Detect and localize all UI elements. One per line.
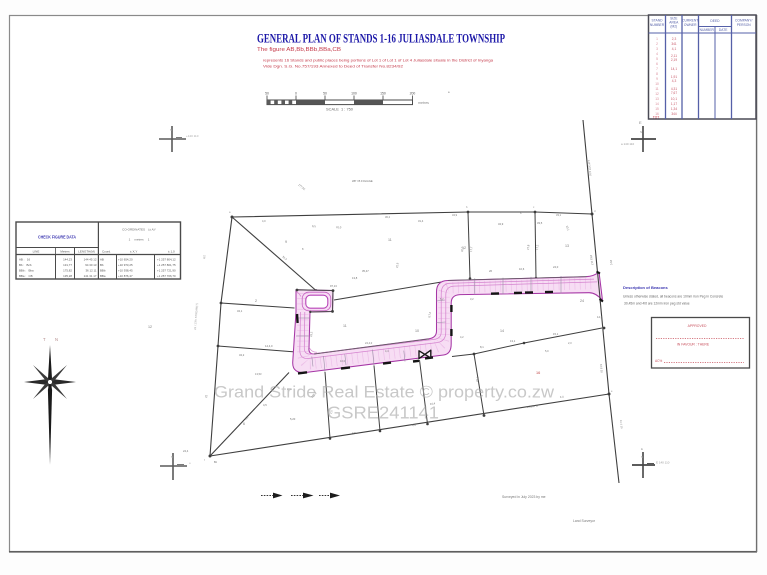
svg-text:LINE: LINE bbox=[33, 250, 40, 254]
svg-text:1: 1 bbox=[656, 37, 658, 41]
svg-text:10,6: 10,6 bbox=[519, 267, 525, 271]
svg-text:Grand Stride Real Estate © pro: Grand Stride Real Estate © property.co.z… bbox=[214, 384, 554, 402]
svg-text:4,1: 4,1 bbox=[672, 47, 677, 51]
svg-text:24,4,0: 24,4,0 bbox=[365, 341, 373, 345]
svg-text:2,3: 2,3 bbox=[568, 341, 572, 345]
svg-text:AB : 16: AB : 16 bbox=[19, 258, 30, 262]
svg-text:8: 8 bbox=[656, 72, 658, 76]
svg-text:represents 16 Stands and publi: represents 16 Stands and public places b… bbox=[263, 58, 494, 63]
svg-text:22,5: 22,5 bbox=[395, 262, 399, 268]
svg-text:WP / B FOLIAGE: WP / B FOLIAGE bbox=[352, 179, 373, 183]
svg-text:0: 0 bbox=[295, 92, 297, 96]
svg-text:144,23: 144,23 bbox=[63, 258, 72, 262]
svg-text:Metres: Metres bbox=[60, 250, 70, 254]
svg-text:27,8: 27,8 bbox=[526, 244, 530, 250]
svg-text:100: 100 bbox=[351, 92, 357, 96]
svg-text:7: 7 bbox=[656, 67, 658, 71]
svg-text:T: T bbox=[43, 337, 46, 342]
svg-text:APPROVED: APPROVED bbox=[688, 324, 707, 328]
svg-text:31,4: 31,4 bbox=[418, 219, 424, 223]
svg-text:N: N bbox=[171, 455, 173, 459]
svg-text:14,5: 14,5 bbox=[597, 315, 603, 319]
svg-text:34,9: 34,9 bbox=[452, 213, 458, 217]
svg-text:CHECK FIGURE DATA: CHECK FIGURE DATA bbox=[38, 235, 76, 240]
svg-text:9: 9 bbox=[285, 240, 287, 244]
svg-text:+10 973,25: +10 973,25 bbox=[118, 263, 133, 267]
svg-text:34,9: 34,9 bbox=[498, 222, 504, 226]
svg-text:NUMBER: NUMBER bbox=[700, 28, 715, 32]
svg-text:94 30 13: 94 30 13 bbox=[85, 263, 97, 267]
svg-text:30,45m and 40t are 12mm iron p: 30,45m and 40t are 12mm iron peg std val… bbox=[624, 302, 690, 306]
svg-text:10,0: 10,0 bbox=[340, 359, 346, 363]
svg-text:IN FAVOUR : THERE: IN FAVOUR : THERE bbox=[677, 343, 710, 347]
svg-text:5,20: 5,20 bbox=[290, 417, 296, 421]
svg-text:(M2): (M2) bbox=[670, 25, 677, 29]
svg-text:1 metres 1: 1 metres 1 bbox=[129, 238, 150, 242]
svg-text:STAND: STAND bbox=[652, 19, 664, 23]
svg-text:7,67: 7,67 bbox=[671, 91, 677, 95]
svg-text:3: 3 bbox=[656, 47, 658, 51]
svg-text:24,0: 24,0 bbox=[553, 265, 559, 269]
svg-text:10,1: 10,1 bbox=[671, 97, 677, 101]
svg-text:341: 341 bbox=[671, 42, 677, 46]
svg-text:24,4: 24,4 bbox=[183, 449, 189, 453]
svg-text:E 140 110: E 140 110 bbox=[656, 461, 670, 465]
svg-text:1,34: 1,34 bbox=[671, 107, 677, 111]
svg-text:E: E bbox=[639, 120, 642, 125]
svg-text:± X,Y: ± X,Y bbox=[130, 250, 137, 254]
svg-text:24: 24 bbox=[580, 299, 584, 303]
svg-text:TOT: TOT bbox=[653, 116, 659, 120]
svg-text:BBa : CB: BBa : CB bbox=[19, 274, 33, 278]
svg-text:26: 26 bbox=[489, 269, 492, 273]
svg-text:4,0: 4,0 bbox=[262, 219, 266, 223]
svg-text:6: 6 bbox=[243, 422, 245, 426]
svg-text:13: 13 bbox=[655, 97, 659, 101]
svg-text:4,5: 4,5 bbox=[263, 403, 267, 407]
svg-text:SCALE 1 : 750: SCALE 1 : 750 bbox=[326, 108, 353, 112]
svg-text:4,4: 4,4 bbox=[385, 349, 389, 353]
svg-text:25,8: 25,8 bbox=[475, 376, 480, 382]
svg-text:12: 12 bbox=[148, 325, 152, 329]
svg-text:CURRENT: CURRENT bbox=[682, 19, 698, 23]
svg-text:E: E bbox=[641, 447, 643, 451]
svg-text:14,4,0: 14,4,0 bbox=[265, 344, 273, 348]
svg-text:+140 110: +140 110 bbox=[186, 134, 199, 138]
svg-text:36 12 11: 36 12 11 bbox=[85, 269, 96, 273]
svg-text:10: 10 bbox=[415, 329, 419, 333]
svg-text:4,2: 4,2 bbox=[460, 335, 464, 339]
svg-text:11: 11 bbox=[343, 324, 347, 328]
svg-text:4: 4 bbox=[656, 52, 658, 56]
svg-text:33,5: 33,5 bbox=[537, 221, 543, 225]
svg-text:3,2: 3,2 bbox=[470, 297, 474, 301]
svg-text:200: 200 bbox=[410, 92, 416, 96]
svg-text:N: N bbox=[641, 455, 643, 459]
svg-text:BBa: BBa bbox=[100, 274, 106, 278]
svg-text:Land Surveyor: Land Surveyor bbox=[573, 519, 596, 523]
svg-text:1,17: 1,17 bbox=[671, 102, 677, 106]
svg-text:131,77: 131,77 bbox=[63, 263, 72, 267]
svg-text:Bb : Bcb: Bb : Bcb bbox=[19, 263, 32, 267]
svg-text:COMPANY/: COMPANY/ bbox=[735, 19, 752, 23]
svg-text:14,1: 14,1 bbox=[671, 67, 677, 71]
svg-text:29 0: 29 0 bbox=[609, 260, 614, 266]
svg-text:metres: metres bbox=[418, 101, 429, 105]
svg-text:97,13: 97,13 bbox=[330, 284, 337, 288]
svg-text:Bb: Bb bbox=[100, 263, 104, 267]
svg-text:5: 5 bbox=[656, 57, 658, 61]
svg-text:BBb : Bba: BBb : Bba bbox=[19, 269, 34, 273]
svg-text:17,7: 17,7 bbox=[469, 246, 473, 252]
svg-text:33,1: 33,1 bbox=[556, 213, 562, 217]
svg-text:Coord.: Coord. bbox=[102, 250, 111, 254]
svg-text:8,1: 8,1 bbox=[480, 345, 484, 349]
svg-text:16: 16 bbox=[536, 371, 540, 375]
svg-text:13,1: 13,1 bbox=[510, 339, 516, 343]
svg-text:15,1: 15,1 bbox=[553, 332, 559, 336]
svg-text:+1 257 804,12: +1 257 804,12 bbox=[157, 258, 176, 262]
svg-text:17,2: 17,2 bbox=[535, 244, 539, 250]
svg-text:The figure AB,Bb,BBb,BBa,CB: The figure AB,Bb,BBb,BBa,CB bbox=[257, 47, 341, 53]
svg-text:+1 257 721,90: +1 257 721,90 bbox=[157, 269, 176, 273]
svg-text:2: 2 bbox=[656, 42, 658, 46]
svg-text:10: 10 bbox=[655, 82, 659, 86]
svg-text:AC%: AC% bbox=[655, 359, 662, 363]
svg-text:50: 50 bbox=[265, 92, 269, 96]
svg-text:+10 938,45: +10 938,45 bbox=[118, 269, 133, 273]
svg-text:13: 13 bbox=[565, 244, 569, 248]
svg-text:GSRE241141: GSRE241141 bbox=[327, 403, 439, 423]
svg-text:50: 50 bbox=[323, 92, 327, 96]
svg-text:N: N bbox=[55, 337, 58, 342]
svg-text:5,0: 5,0 bbox=[545, 349, 549, 353]
svg-text:34,1: 34,1 bbox=[237, 309, 243, 313]
svg-text:± 1,0: ± 1,0 bbox=[168, 250, 175, 254]
svg-text:+1 257 706,70: +1 257 706,70 bbox=[157, 274, 176, 278]
svg-text:CO-ORDINATES (± A)°: CO-ORDINATES (± A)° bbox=[122, 228, 156, 232]
svg-text:OWNER: OWNER bbox=[684, 23, 697, 27]
svg-text:GENERAL PLAN OF STANDS 1-16 JU: GENERAL PLAN OF STANDS 1-16 JULIASDALE T… bbox=[257, 32, 505, 46]
svg-text:N: N bbox=[170, 128, 172, 132]
svg-text:150: 150 bbox=[380, 92, 386, 96]
svg-text:34,2: 34,2 bbox=[239, 353, 245, 357]
svg-text:2: 2 bbox=[255, 299, 257, 303]
svg-text:32,2: 32,2 bbox=[460, 246, 464, 252]
svg-text:14: 14 bbox=[500, 329, 504, 333]
svg-text:NUMBER: NUMBER bbox=[650, 23, 665, 27]
svg-text:+10 654,20: +10 654,20 bbox=[118, 258, 133, 262]
svg-text:9: 9 bbox=[656, 77, 658, 81]
svg-text:DEED: DEED bbox=[710, 19, 720, 23]
svg-text:5,2: 5,2 bbox=[440, 297, 444, 301]
svg-text:2,3: 2,3 bbox=[672, 37, 677, 41]
svg-text:BBb: BBb bbox=[100, 269, 106, 273]
svg-text:2,19: 2,19 bbox=[671, 58, 677, 62]
svg-text:13,53: 13,53 bbox=[255, 372, 262, 376]
svg-text:Unless otherwise stated, all b: Unless otherwise stated, all beacons are… bbox=[623, 295, 723, 299]
svg-text:LENGTH(M): LENGTH(M) bbox=[78, 250, 95, 254]
svg-text:144 45 12: 144 45 12 bbox=[84, 258, 97, 262]
svg-text:175,82: 175,82 bbox=[63, 269, 72, 273]
svg-text:344: 344 bbox=[671, 112, 677, 116]
svg-text:11: 11 bbox=[388, 238, 392, 242]
svg-text:11: 11 bbox=[655, 87, 659, 91]
svg-text:AB: AB bbox=[100, 258, 104, 262]
svg-text:DATE: DATE bbox=[719, 28, 728, 32]
svg-text:+10 876,47: +10 876,47 bbox=[118, 274, 133, 278]
svg-text:135,28: 135,28 bbox=[63, 274, 72, 278]
svg-text:Vide Dgn. S.G. No.757/193 Anne: Vide Dgn. S.G. No.757/193 Annexed to Dee… bbox=[263, 64, 404, 69]
svg-text:4,3: 4,3 bbox=[672, 79, 677, 83]
svg-text:6: 6 bbox=[656, 62, 658, 66]
svg-text:a 140 110: a 140 110 bbox=[621, 142, 634, 146]
svg-text:4,5: 4,5 bbox=[352, 431, 356, 435]
svg-text:141 31 17: 141 31 17 bbox=[84, 274, 97, 278]
svg-text:12: 12 bbox=[655, 92, 659, 96]
svg-text:15: 15 bbox=[655, 107, 659, 111]
svg-text:13,8: 13,8 bbox=[352, 276, 358, 280]
svg-text:PERSON: PERSON bbox=[737, 23, 752, 27]
svg-text:8,6: 8,6 bbox=[412, 423, 416, 427]
svg-text:30,2: 30,2 bbox=[385, 215, 391, 219]
svg-text:31,0: 31,0 bbox=[336, 225, 342, 229]
svg-text:N: N bbox=[640, 130, 642, 134]
svg-text:Description of Beacons: Description of Beacons bbox=[623, 285, 668, 290]
svg-text:35,47: 35,47 bbox=[362, 269, 369, 273]
svg-text:Surveyed in July 2023 by me: Surveyed in July 2023 by me bbox=[502, 495, 546, 499]
svg-text:23,2: 23,2 bbox=[309, 331, 313, 337]
svg-text:+1 257 801,75: +1 257 801,75 bbox=[157, 263, 176, 267]
svg-text:14: 14 bbox=[655, 102, 659, 106]
